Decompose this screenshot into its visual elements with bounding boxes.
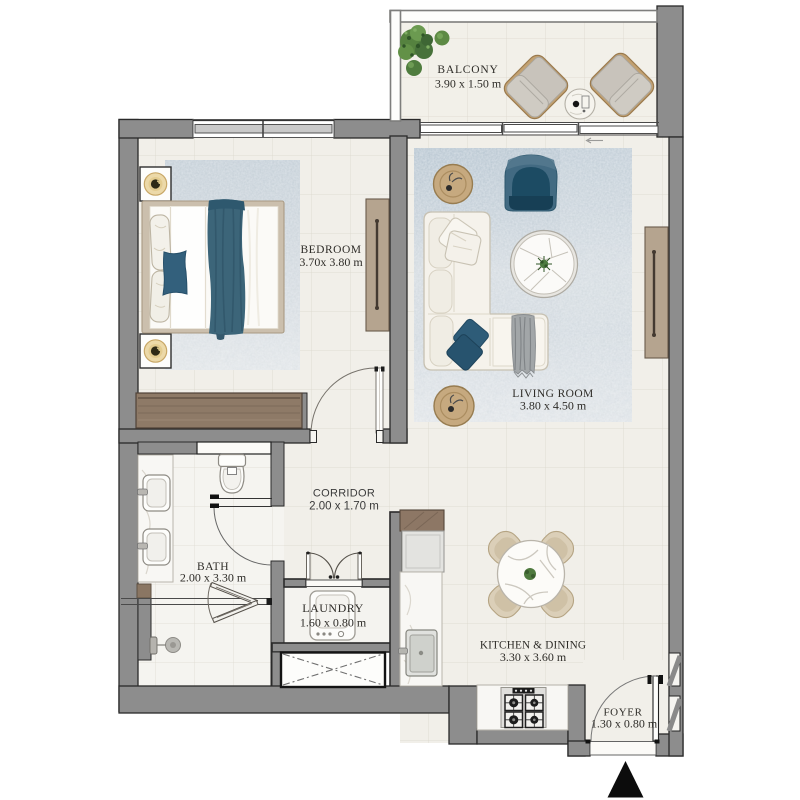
svg-text:1.30 x 0.80 m: 1.30 x 0.80 m [591,717,658,731]
svg-text:1.60 x 0.80 m: 1.60 x 0.80 m [300,616,367,630]
svg-text:BALCONY: BALCONY [437,64,498,76]
svg-text:3.30 x 3.60 m: 3.30 x 3.60 m [500,650,567,664]
svg-text:3.90 x 1.50 m: 3.90 x 1.50 m [435,77,502,91]
svg-text:2.00 x 1.70 m: 2.00 x 1.70 m [309,501,379,513]
svg-text:3.70x 3.80 m: 3.70x 3.80 m [299,255,363,269]
svg-text:LAUNDRY: LAUNDRY [302,601,364,615]
svg-text:2.00 x 3.30 m: 2.00 x 3.30 m [180,571,247,585]
svg-text:CORRIDOR: CORRIDOR [313,488,375,500]
svg-text:3.80 x 4.50 m: 3.80 x 4.50 m [520,399,587,413]
